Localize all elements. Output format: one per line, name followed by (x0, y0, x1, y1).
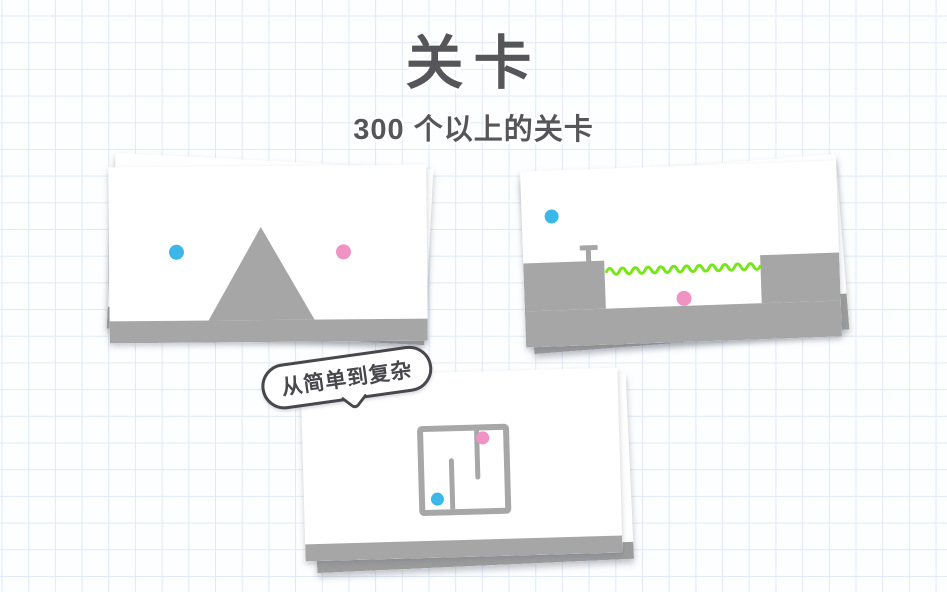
t-peg-stem (586, 249, 591, 262)
level-preview-triangle (108, 165, 428, 344)
square-maze (417, 424, 511, 517)
maze-inner-wall-bottom (449, 458, 455, 509)
terrain-ledge-right (760, 252, 841, 303)
terrain-ledge-left (523, 261, 606, 312)
page: { "header": { "title": "关卡", "subtitle":… (0, 0, 947, 592)
page-subtitle: 300 个以上的关卡 (0, 106, 947, 148)
level-card-stack-triangle (109, 166, 427, 342)
green-wavy-line (603, 259, 761, 277)
level-preview-pit (520, 161, 842, 348)
blue-ball (544, 209, 558, 223)
terrain-triangle-hill (208, 227, 315, 321)
blue-ball (431, 493, 444, 506)
pink-ball (676, 291, 692, 307)
page-title: 关卡 (0, 0, 947, 100)
pink-ball (336, 244, 351, 259)
wave-path (606, 263, 760, 274)
blue-ball (169, 245, 184, 260)
level-card-stack-pit (523, 166, 839, 342)
terrain-floor (110, 319, 428, 344)
page-header: 关卡 300 个以上的关卡 (0, 0, 947, 148)
pink-ball (476, 431, 489, 444)
